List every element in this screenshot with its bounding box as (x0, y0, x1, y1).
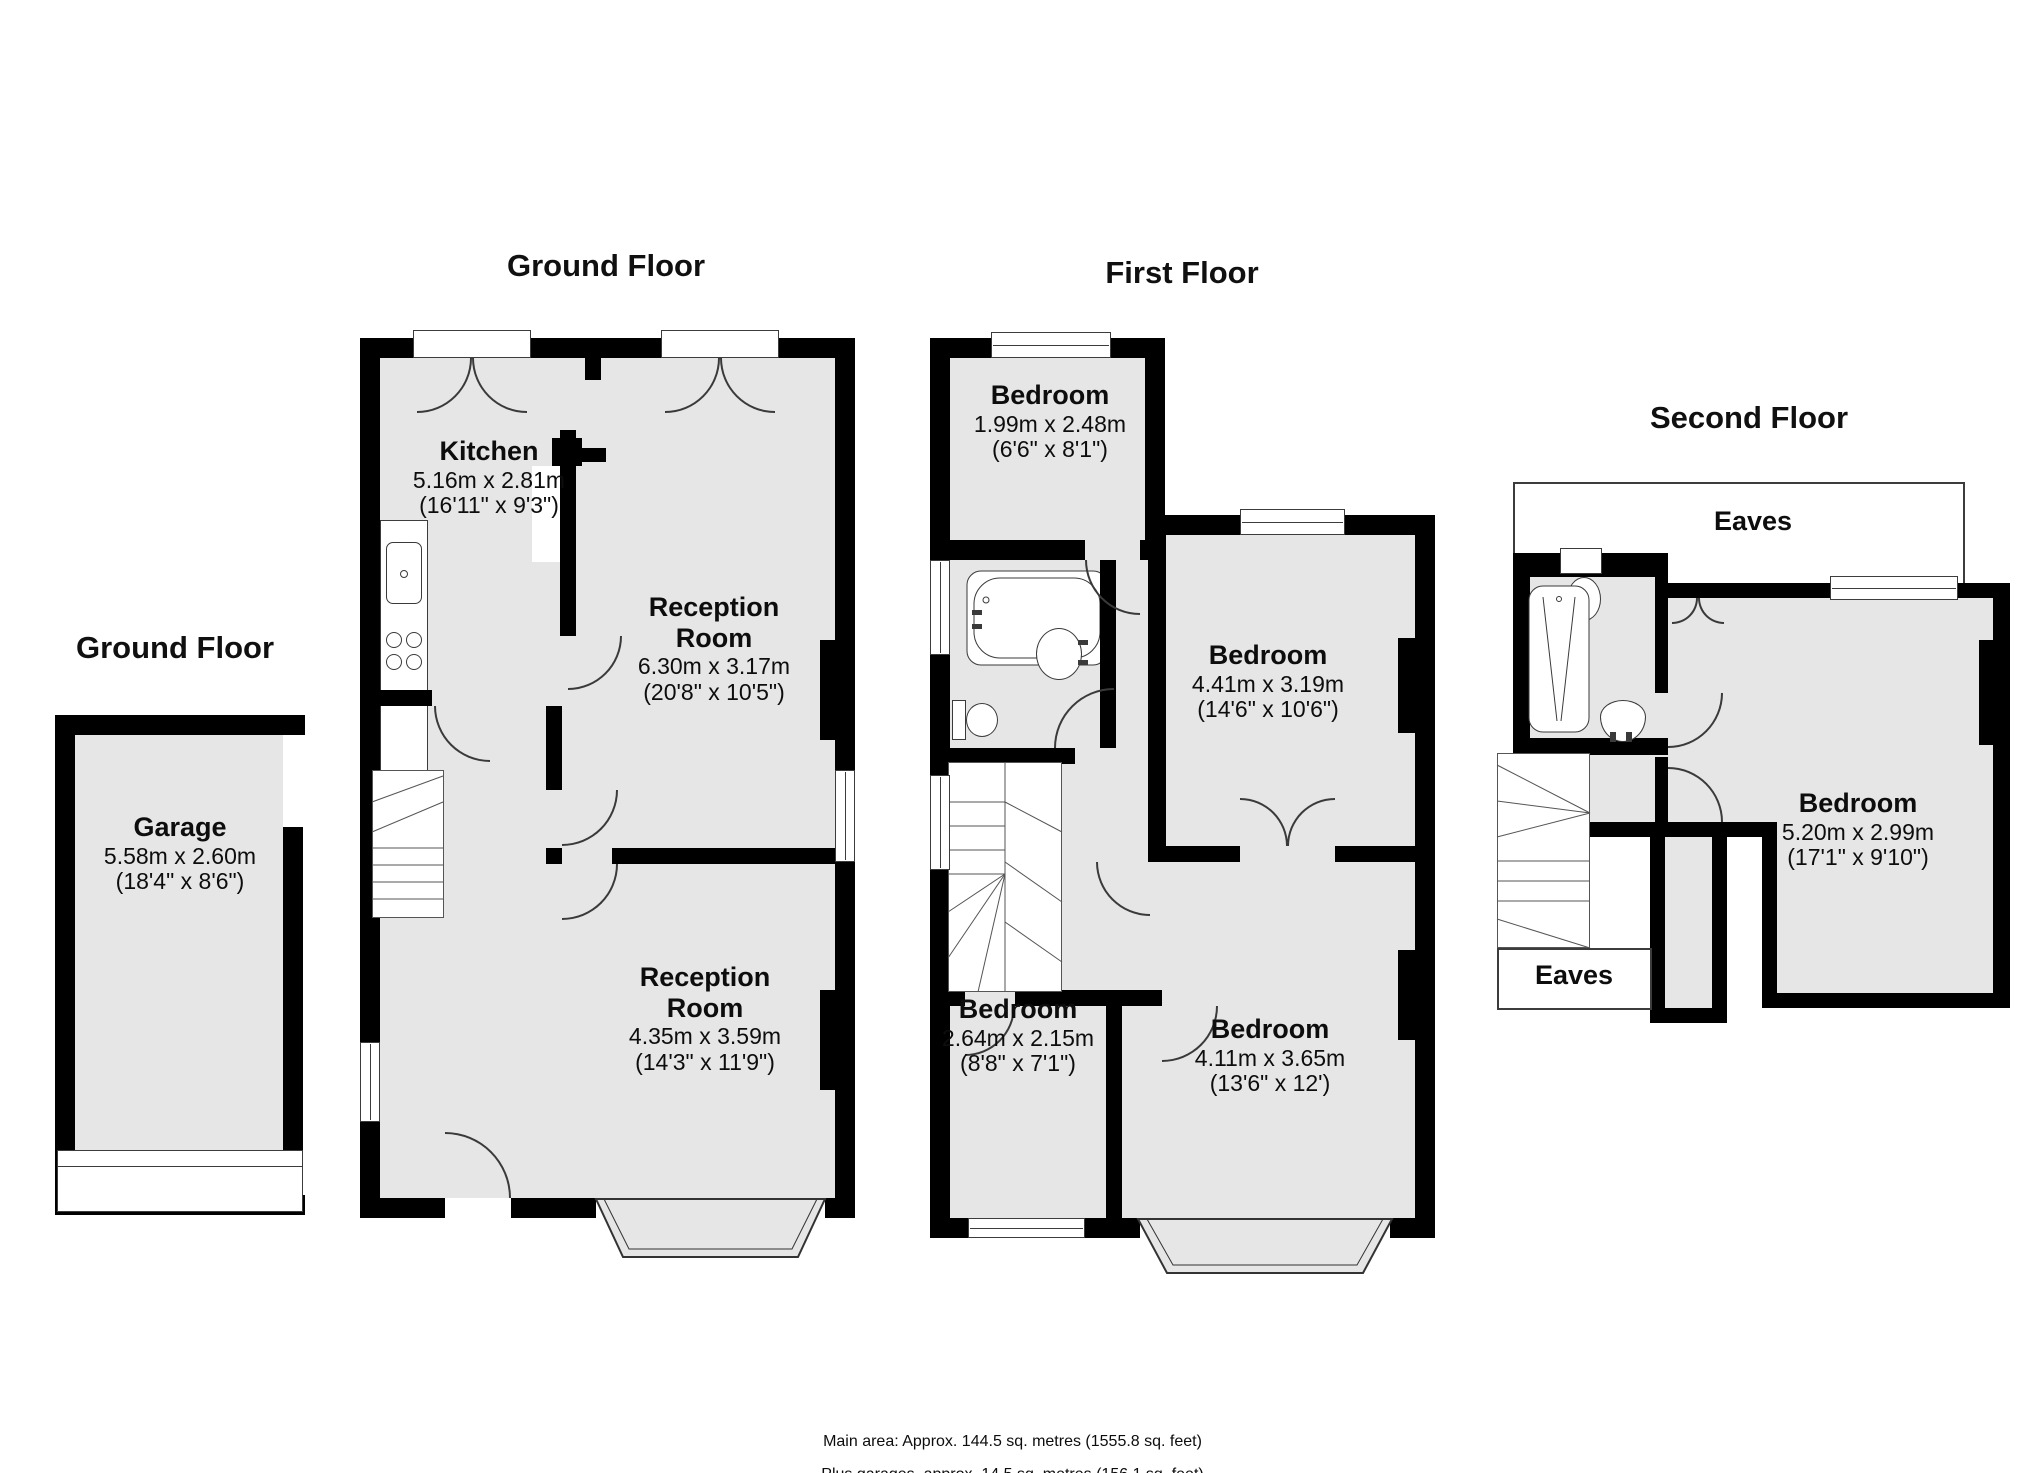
garage-area-text: Plus garages, approx. 14.5 sq. metres (1… (0, 1466, 2025, 1473)
wall (546, 848, 562, 864)
eaves-bottom-label: Eaves (1504, 960, 1644, 991)
room-size-metric: 4.41m x 3.19m (1153, 671, 1383, 697)
room-size-metric: 6.30m x 3.17m (619, 653, 809, 679)
toilet-cistern (1560, 548, 1602, 574)
wall (612, 848, 835, 864)
room-name: Eaves (1673, 506, 1833, 537)
window (1830, 576, 1958, 600)
wall (1650, 822, 1665, 1008)
wall (1655, 553, 1668, 583)
wall (1085, 1218, 1140, 1238)
room-size-metric: 5.58m x 2.60m (70, 843, 290, 869)
french-door-frame (661, 330, 779, 358)
radiator (1979, 640, 1993, 745)
wall (527, 338, 665, 358)
sf-bedroom-label: Bedroom 5.20m x 2.99m (17'1" x 9'10") (1738, 788, 1978, 870)
wall (1650, 1008, 1727, 1023)
room-size-imperial: (17'1" x 9'10") (1738, 844, 1978, 870)
floorplan-page: Ground Floor Ground Floor First Floor Se… (0, 0, 2025, 1473)
room-size-imperial: (6'6" x 8'1") (940, 436, 1160, 462)
sink-tap (1078, 640, 1088, 645)
stove-icon (406, 654, 422, 670)
room-size-imperial: (16'11" x 9'3") (359, 492, 619, 518)
sink-tap (1626, 732, 1632, 742)
room-name: Eaves (1504, 960, 1644, 991)
radiator (820, 990, 835, 1090)
room-name: Bedroom (1153, 640, 1383, 671)
room-name: Reception Room (619, 592, 809, 653)
ground-floor-title: Ground Floor (507, 248, 705, 284)
room-name: Garage (70, 812, 290, 843)
radiator (1398, 638, 1415, 733)
window (835, 770, 855, 862)
bay-window (1135, 1218, 1395, 1276)
window (991, 332, 1111, 358)
room-size-metric: 5.20m x 2.99m (1738, 819, 1978, 845)
garage-floor-title: Ground Floor (76, 630, 274, 666)
room-size-metric: 5.16m x 2.81m (359, 467, 619, 493)
wall (585, 358, 601, 380)
sink-drain-dot (400, 570, 408, 578)
room-size-imperial: (13'6" x 12') (1155, 1070, 1385, 1096)
room-name: Bedroom (1738, 788, 1978, 819)
wall (930, 1218, 968, 1238)
ff-bedroom-bottom-right-label: Bedroom 4.11m x 3.65m (13'6" x 12') (1155, 1014, 1385, 1096)
window (968, 1218, 1085, 1238)
room-size-imperial: (20'8" x 10'5") (619, 679, 809, 705)
wall (55, 715, 305, 735)
room-name: Bedroom (1155, 1014, 1385, 1045)
wall (1655, 757, 1668, 822)
sink-tap (1610, 732, 1616, 742)
room-size-imperial: (14'6" x 10'6") (1153, 696, 1383, 722)
first-floor-title: First Floor (1105, 255, 1258, 291)
ff-bedroom-bottom-left-label: Bedroom 2.64m x 2.15m (8'8" x 7'1") (908, 994, 1128, 1076)
wall (1712, 837, 1727, 1008)
wall (1762, 993, 2010, 1008)
wall (360, 1198, 445, 1218)
wall (950, 540, 1085, 560)
reception-room-2-label: Reception Room 4.35m x 3.59m (14'3" x 11… (610, 962, 800, 1075)
stove-icon (386, 632, 402, 648)
room-name: Reception Room (610, 962, 800, 1023)
room-size-metric: 4.11m x 3.65m (1155, 1045, 1385, 1071)
radiator (820, 640, 835, 740)
toilet-cistern (952, 700, 966, 740)
door-opening (445, 1198, 511, 1218)
eaves-top-label: Eaves (1673, 506, 1833, 537)
window (930, 775, 950, 870)
room-name: Bedroom (940, 380, 1160, 411)
wall (1655, 583, 1668, 693)
window (360, 1042, 380, 1122)
ff-bedroom-small-label: Bedroom 1.99m x 2.48m (6'6" x 8'1") (940, 380, 1160, 462)
room-size-imperial: (14'3" x 11'9") (610, 1049, 800, 1075)
kitchen-label: Kitchen 5.16m x 2.81m (16'11" x 9'3") (359, 436, 619, 518)
room-name: Bedroom (908, 994, 1128, 1025)
wall (825, 1198, 855, 1218)
garage-label: Garage 5.58m x 2.60m (18'4" x 8'6") (70, 812, 290, 894)
second-floor-title: Second Floor (1650, 400, 1848, 436)
stairs (1497, 753, 1590, 948)
room-size-metric: 4.35m x 3.59m (610, 1023, 800, 1049)
room-size-metric: 2.64m x 2.15m (908, 1025, 1128, 1051)
window (930, 560, 950, 655)
bay-window (593, 1198, 828, 1260)
first-floor-interior (1165, 535, 1415, 1218)
radiator (1398, 950, 1415, 1040)
wall (511, 1198, 596, 1218)
wall (1335, 846, 1435, 862)
sink-tap (1078, 660, 1088, 665)
wall (546, 706, 562, 790)
french-door-frame (413, 330, 531, 358)
wall (1415, 515, 1435, 1238)
room-size-metric: 1.99m x 2.48m (940, 411, 1160, 437)
room-size-imperial: (8'8" x 7'1") (908, 1050, 1128, 1076)
bathtub-icon (1528, 585, 1590, 733)
garage-door (57, 1150, 303, 1212)
garage-door-line (57, 1166, 303, 1167)
toilet-icon (966, 703, 998, 737)
total-area-text: Main area: Approx. 144.5 sq. metres (155… (0, 1433, 2025, 1451)
wall (1390, 1218, 1435, 1238)
sink-icon (1036, 628, 1082, 680)
garage-room-floor (75, 735, 283, 1195)
stairs (372, 770, 444, 918)
wall (380, 690, 432, 706)
reception-room-1-label: Reception Room 6.30m x 3.17m (20'8" x 10… (619, 592, 809, 705)
stove-icon (386, 654, 402, 670)
stove-icon (406, 632, 422, 648)
room-size-imperial: (18'4" x 8'6") (70, 868, 290, 894)
wall (1993, 583, 2010, 1008)
ff-bedroom-right-label: Bedroom 4.41m x 3.19m (14'6" x 10'6") (1153, 640, 1383, 722)
room-name: Kitchen (359, 436, 619, 467)
wall (1148, 846, 1240, 862)
stairs (948, 762, 1062, 992)
window (1240, 509, 1345, 535)
wall (55, 715, 75, 1215)
